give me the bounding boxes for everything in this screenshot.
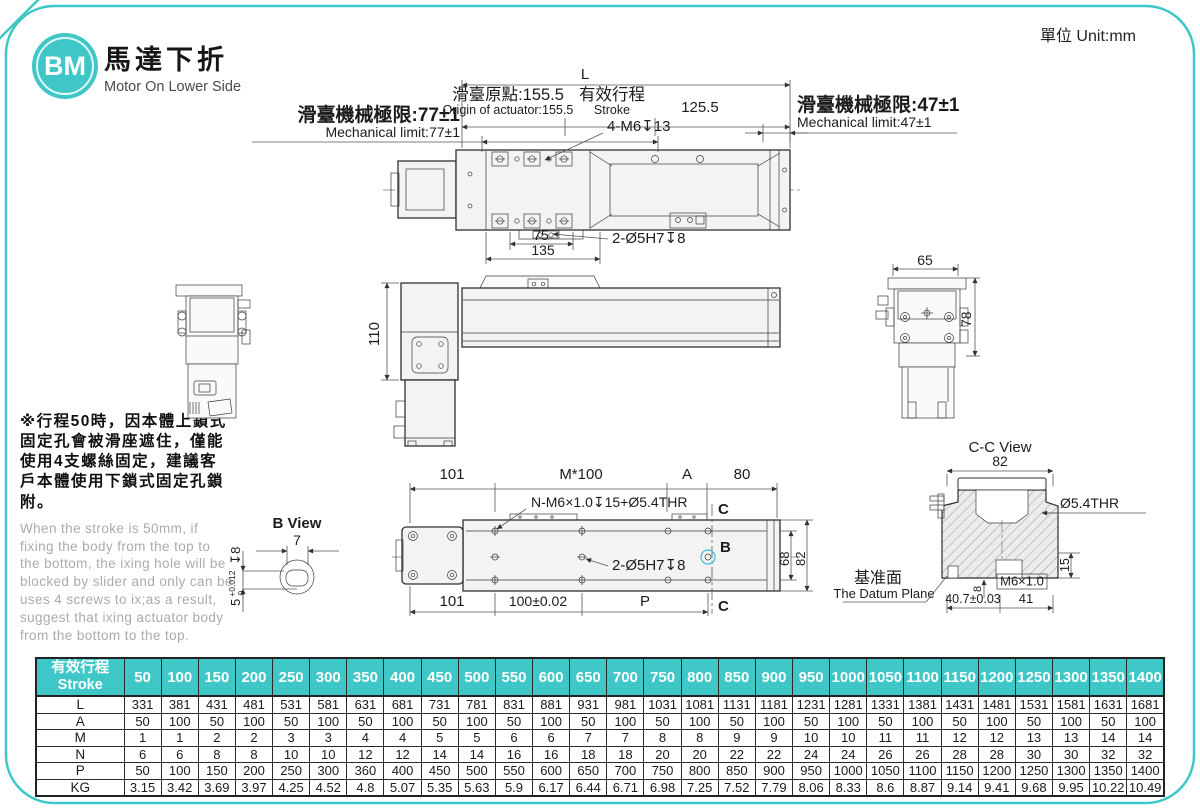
table-cell: 1: [124, 730, 161, 747]
table-cell: 2: [198, 730, 235, 747]
table-cell: 100: [978, 713, 1015, 730]
table-cell: 14: [1090, 730, 1127, 747]
stroke-col-header: 400: [384, 658, 421, 696]
table-cell: 100: [161, 713, 198, 730]
table-cell: 331: [124, 696, 161, 713]
table-cell: 9.41: [978, 779, 1015, 796]
cc-section-view: C-C View 82 Ø5.4THR 15 M6×1.0 8 40.7±0.0…: [833, 439, 1146, 613]
table-cell: 1281: [830, 696, 867, 713]
stroke-col-header: 1300: [1053, 658, 1090, 696]
row-label: L: [36, 696, 124, 713]
table-cell: 50: [941, 713, 978, 730]
stroke-col-header: 650: [570, 658, 607, 696]
dim-label-82: 82: [793, 552, 808, 566]
table-cell: 20: [681, 746, 718, 763]
stroke-col-header: 850: [718, 658, 755, 696]
stroke-col-header: 1200: [978, 658, 1015, 696]
stroke-col-header: 1050: [867, 658, 904, 696]
table-cell: 50: [198, 713, 235, 730]
table-cell: 18: [607, 746, 644, 763]
stroke-col-header: 1400: [1127, 658, 1164, 696]
table-cell: 1400: [1127, 763, 1164, 780]
b-view-detail: B View 7 5+0.0120↧8: [227, 515, 339, 612]
table-cell: 8: [644, 730, 681, 747]
table-cell: 50: [347, 713, 384, 730]
stroke-col-header: 450: [421, 658, 458, 696]
table-cell: 931: [570, 696, 607, 713]
stroke-col-header: 1350: [1090, 658, 1127, 696]
table-cell: 100: [1053, 713, 1090, 730]
table-cell: 24: [793, 746, 830, 763]
table-cell: 950: [793, 763, 830, 780]
table-cell: 100: [384, 713, 421, 730]
table-cell: 12: [347, 746, 384, 763]
dim-label-L: L: [581, 66, 589, 83]
table-cell: 500: [458, 763, 495, 780]
table-cell: 6.17: [533, 779, 570, 796]
table-cell: 6: [161, 746, 198, 763]
table-cell: 1581: [1053, 696, 1090, 713]
table-cell: 1331: [867, 696, 904, 713]
table-cell: 100: [533, 713, 570, 730]
table-cell: 9.14: [941, 779, 978, 796]
stroke-col-header: 1000: [830, 658, 867, 696]
table-cell: 6.98: [644, 779, 681, 796]
dim-label-a: A: [682, 466, 692, 483]
table-cell: 2: [235, 730, 272, 747]
table-cell: 32: [1127, 746, 1164, 763]
table-cell: 8.6: [867, 779, 904, 796]
origin-label-en: Origin of actuator:155.5: [443, 103, 574, 117]
dim-label-65: 65: [917, 252, 933, 268]
dim-label-101-top: 101: [439, 466, 464, 483]
table-cell: 6: [124, 746, 161, 763]
table-cell: 1081: [681, 696, 718, 713]
side-elevation-view: 110: [366, 276, 780, 446]
table-cell: 3.97: [235, 779, 272, 796]
stroke-spec-table: 有效行程Stroke501001502002503003504004505005…: [35, 657, 1165, 797]
table-cell: 1231: [793, 696, 830, 713]
table-cell: 1681: [1127, 696, 1164, 713]
dim-label-41: 41: [1019, 591, 1033, 606]
right-end-view: 65 78: [876, 252, 980, 418]
stroke-col-header: 750: [644, 658, 681, 696]
table-cell: 8.87: [904, 779, 941, 796]
table-cell: 1381: [904, 696, 941, 713]
table-cell: 531: [273, 696, 310, 713]
table-cell: 50: [718, 713, 755, 730]
thr-callout: Ø5.4THR: [1060, 495, 1119, 511]
table-cell: 1200: [978, 763, 1015, 780]
table-cell: 20: [644, 746, 681, 763]
table-cell: 3.69: [198, 779, 235, 796]
table-cell: 16: [495, 746, 532, 763]
dim-label-15: 15: [1058, 558, 1072, 572]
dim-label-135: 135: [531, 242, 555, 258]
table-cell: 14: [421, 746, 458, 763]
table-cell: 10: [793, 730, 830, 747]
table-cell: 3.15: [124, 779, 161, 796]
table-cell: 8: [681, 730, 718, 747]
pin-callout-bottom: 2-Ø5H7↧8: [612, 557, 685, 574]
dim-label-407: 40.7±0.03: [945, 592, 1001, 606]
table-cell: 150: [198, 763, 235, 780]
tol-lower: 0: [236, 591, 246, 596]
limit47-label-en: Mechanical limit:47±1: [797, 114, 932, 130]
table-cell: 8: [235, 746, 272, 763]
table-cell: 681: [384, 696, 421, 713]
table-cell: 7.79: [755, 779, 792, 796]
stroke-col-header: 350: [347, 658, 384, 696]
table-cell: 4: [384, 730, 421, 747]
table-cell: 581: [310, 696, 347, 713]
table-cell: 26: [867, 746, 904, 763]
left-end-view: [176, 285, 250, 418]
table-cell: 1: [161, 730, 198, 747]
table-cell: 6: [533, 730, 570, 747]
table-cell: 1000: [830, 763, 867, 780]
table-cell: 6: [495, 730, 532, 747]
table-cell: 900: [755, 763, 792, 780]
stroke-col-header: 250: [273, 658, 310, 696]
table-cell: 30: [1015, 746, 1052, 763]
table-cell: 50: [1015, 713, 1052, 730]
table-cell: 7: [607, 730, 644, 747]
section-label-c-bottom: C: [718, 598, 729, 615]
m6-thread-label: M6×1.0: [1000, 574, 1044, 589]
table-cell: 14: [458, 746, 495, 763]
dim-label-101-bottom: 101: [439, 593, 464, 610]
table-cell: 50: [273, 713, 310, 730]
table-cell: 12: [941, 730, 978, 747]
table-cell: 1631: [1090, 696, 1127, 713]
table-cell: 5.35: [421, 779, 458, 796]
table-cell: 100: [830, 713, 867, 730]
stroke-label-en: Stroke: [594, 103, 630, 117]
table-cell: 100: [755, 713, 792, 730]
table-cell: 24: [830, 746, 867, 763]
table-cell: 360: [347, 763, 384, 780]
table-row: M11223344556677889910101111121213131414: [36, 730, 1164, 747]
table-cell: 50: [495, 713, 532, 730]
table-cell: 100: [904, 713, 941, 730]
table-cell: 28: [941, 746, 978, 763]
table-cell: 981: [607, 696, 644, 713]
table-cell: 9.68: [1015, 779, 1052, 796]
dim-label-78: 78: [958, 311, 974, 327]
stroke-col-header: 150: [198, 658, 235, 696]
stroke-col-header: 1150: [941, 658, 978, 696]
table-cell: 7.25: [681, 779, 718, 796]
table-cell: 550: [495, 763, 532, 780]
table-cell: 800: [681, 763, 718, 780]
tol-depth: ↧8: [228, 547, 243, 565]
table-cell: 100: [458, 713, 495, 730]
table-cell: 50: [421, 713, 458, 730]
b-view-title: B View: [273, 515, 322, 532]
table-cell: 3.42: [161, 779, 198, 796]
table-cell: 9: [718, 730, 755, 747]
table-cell: 631: [347, 696, 384, 713]
stroke-col-header: 300: [310, 658, 347, 696]
table-cell: 300: [310, 763, 347, 780]
stroke-col-header: 950: [793, 658, 830, 696]
table-cell: 13: [1053, 730, 1090, 747]
stroke-col-header: 900: [755, 658, 792, 696]
table-cell: 50: [124, 713, 161, 730]
table-cell: 6.71: [607, 779, 644, 796]
datum-label-zh: 基准面: [854, 569, 902, 587]
table-cell: 50: [1090, 713, 1127, 730]
stroke-col-header: 1250: [1015, 658, 1052, 696]
table-cell: 12: [384, 746, 421, 763]
table-cell: 10.49: [1127, 779, 1164, 796]
row-label: M: [36, 730, 124, 747]
table-cell: 600: [533, 763, 570, 780]
stroke-col-header: 100: [161, 658, 198, 696]
table-cell: 781: [458, 696, 495, 713]
origin-label-zh: 滑臺原點:155.5: [452, 85, 564, 104]
table-cell: 100: [235, 713, 272, 730]
detail-label-b: B: [720, 539, 731, 556]
dim-label-p: P: [640, 593, 650, 610]
table-cell: 9.95: [1053, 779, 1090, 796]
table-cell: 5: [458, 730, 495, 747]
stroke-col-header: 200: [235, 658, 272, 696]
row-label: P: [36, 763, 124, 780]
table-cell: 750: [644, 763, 681, 780]
table-header-stroke: 有效行程Stroke: [36, 658, 124, 696]
table-cell: 100: [161, 763, 198, 780]
table-row: L331381431481531581631681731781831881931…: [36, 696, 1164, 713]
limit47-label-zh: 滑臺機械極限:47±1: [797, 93, 960, 116]
table-cell: 50: [124, 763, 161, 780]
table-cell: 3: [310, 730, 347, 747]
stroke-col-header: 600: [533, 658, 570, 696]
table-cell: 13: [1015, 730, 1052, 747]
table-cell: 22: [718, 746, 755, 763]
table-cell: 4.8: [347, 779, 384, 796]
table-cell: 831: [495, 696, 532, 713]
dim-label-110: 110: [366, 322, 383, 346]
table-cell: 3: [273, 730, 310, 747]
table-cell: 9: [755, 730, 792, 747]
dim-label-82-cc: 82: [992, 453, 1008, 469]
table-cell: 1481: [978, 696, 1015, 713]
table-cell: 1031: [644, 696, 681, 713]
table-row: N668810101212141416161818202022222424262…: [36, 746, 1164, 763]
table-cell: 250: [273, 763, 310, 780]
stroke-col-header: 1100: [904, 658, 941, 696]
table-cell: 5.9: [495, 779, 532, 796]
stroke-col-header: 700: [607, 658, 644, 696]
table-cell: 8: [198, 746, 235, 763]
dim-label-80: 80: [734, 466, 751, 483]
bottom-plan-view: C C B 101 M*100 A 80 N-M6×1.0↧15+Ø5.4THR…: [392, 466, 813, 616]
pin-callout-top: 2-Ø5H7↧8: [612, 230, 685, 247]
table-cell: 100: [310, 713, 347, 730]
table-row: KG3.153.423.693.974.254.524.85.075.355.6…: [36, 779, 1164, 796]
stroke-col-header: 500: [458, 658, 495, 696]
dim-label-m100: M*100: [559, 466, 602, 483]
table-cell: 881: [533, 696, 570, 713]
table-row: A501005010050100501005010050100501005010…: [36, 713, 1164, 730]
table-cell: 8.33: [830, 779, 867, 796]
table-cell: 1150: [941, 763, 978, 780]
table-cell: 1531: [1015, 696, 1052, 713]
table-cell: 1300: [1053, 763, 1090, 780]
table-cell: 11: [867, 730, 904, 747]
dim-label-100: 100±0.02: [509, 593, 568, 609]
table-cell: 1181: [755, 696, 792, 713]
table-cell: 10.22: [1090, 779, 1127, 796]
dim-label-7: 7: [293, 532, 301, 548]
limit77-label-en: Mechanical limit:77±1: [325, 124, 460, 140]
table-cell: 4.52: [310, 779, 347, 796]
table-cell: 100: [1127, 713, 1164, 730]
dim-label-68: 68: [777, 552, 792, 566]
table-cell: 1350: [1090, 763, 1127, 780]
table-cell: 200: [235, 763, 272, 780]
table-cell: 4.25: [273, 779, 310, 796]
table-cell: 18: [570, 746, 607, 763]
table-cell: 5.07: [384, 779, 421, 796]
table-cell: 50: [644, 713, 681, 730]
stroke-col-header: 50: [124, 658, 161, 696]
table-cell: 431: [198, 696, 235, 713]
table-cell: 10: [310, 746, 347, 763]
table-cell: 32: [1090, 746, 1127, 763]
table-cell: 11: [904, 730, 941, 747]
table-cell: 450: [421, 763, 458, 780]
table-cell: 50: [570, 713, 607, 730]
table-cell: 400: [384, 763, 421, 780]
stroke-col-header: 800: [681, 658, 718, 696]
top-plan-view: L 滑臺原點:155.5 Origin of actuator:155.5 有效…: [252, 66, 960, 264]
limit77-label-zh: 滑臺機械極限:77±1: [298, 103, 461, 126]
dim-label-125: 125.5: [681, 99, 719, 116]
dim-label-75: 75: [533, 227, 549, 243]
table-cell: 16: [533, 746, 570, 763]
table-cell: 7.52: [718, 779, 755, 796]
table-cell: 10: [273, 746, 310, 763]
table-cell: 850: [718, 763, 755, 780]
table-cell: 50: [867, 713, 904, 730]
table-cell: 5.63: [458, 779, 495, 796]
table-cell: 1431: [941, 696, 978, 713]
table-cell: 1100: [904, 763, 941, 780]
table-cell: 700: [607, 763, 644, 780]
table-cell: 14: [1127, 730, 1164, 747]
table-cell: 30: [1053, 746, 1090, 763]
nm6-callout: N-M6×1.0↧15+Ø5.4THR: [531, 494, 687, 510]
table-cell: 10: [830, 730, 867, 747]
table-cell: 100: [681, 713, 718, 730]
stroke-label-zh: 有效行程: [579, 85, 645, 104]
table-cell: 1250: [1015, 763, 1052, 780]
page: { "page": { "unit": "單位 Unit:mm" }, "col…: [0, 0, 1200, 809]
table-cell: 50: [793, 713, 830, 730]
table-cell: 1131: [718, 696, 755, 713]
row-label: A: [36, 713, 124, 730]
table-row: P501001502002503003604004505005506006507…: [36, 763, 1164, 780]
table-cell: 7: [570, 730, 607, 747]
table-cell: 8.06: [793, 779, 830, 796]
tol-nominal: 5: [228, 599, 243, 606]
table-cell: 6.44: [570, 779, 607, 796]
table-cell: 481: [235, 696, 272, 713]
spec-table: 有效行程Stroke501001502002503003504004505005…: [35, 657, 1165, 797]
table-cell: 650: [570, 763, 607, 780]
stroke-col-header: 550: [495, 658, 532, 696]
table-cell: 1050: [867, 763, 904, 780]
table-cell: 26: [904, 746, 941, 763]
m6-callout: 4-M6↧13: [607, 118, 670, 135]
row-label: N: [36, 746, 124, 763]
section-label-c-top: C: [718, 501, 729, 518]
table-cell: 5: [421, 730, 458, 747]
datum-label-en: The Datum Plane: [833, 586, 934, 601]
table-cell: 731: [421, 696, 458, 713]
table-cell: 381: [161, 696, 198, 713]
table-cell: 12: [978, 730, 1015, 747]
table-cell: 4: [347, 730, 384, 747]
table-cell: 28: [978, 746, 1015, 763]
table-cell: 22: [755, 746, 792, 763]
row-label: KG: [36, 779, 124, 796]
table-cell: 100: [607, 713, 644, 730]
